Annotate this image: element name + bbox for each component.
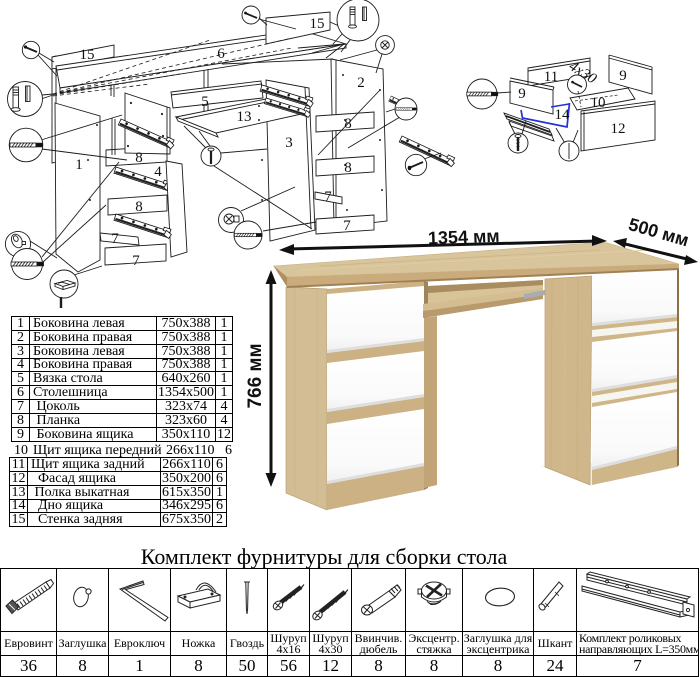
svg-text:12: 12 <box>611 121 626 137</box>
svg-text:11: 11 <box>544 69 558 85</box>
svg-text:15: 15 <box>310 16 325 32</box>
svg-text:8: 8 <box>344 116 352 132</box>
svg-text:500 мм: 500 мм <box>626 214 691 250</box>
svg-text:1354 мм: 1354 мм <box>428 226 500 248</box>
svg-text:6: 6 <box>217 46 225 62</box>
svg-text:7: 7 <box>324 189 332 205</box>
svg-text:9: 9 <box>518 86 526 102</box>
svg-text:13: 13 <box>237 109 252 125</box>
svg-text:7: 7 <box>111 231 119 247</box>
svg-text:14: 14 <box>555 107 571 123</box>
svg-text:8: 8 <box>344 160 352 176</box>
svg-text:15: 15 <box>80 47 95 63</box>
svg-text:1: 1 <box>75 157 83 173</box>
svg-text:3: 3 <box>285 135 293 151</box>
svg-text:10: 10 <box>591 95 606 111</box>
svg-text:8: 8 <box>135 150 143 166</box>
svg-text:9: 9 <box>619 68 627 84</box>
svg-text:4: 4 <box>154 164 162 180</box>
svg-text:766 мм: 766 мм <box>245 343 266 408</box>
svg-text:8: 8 <box>135 199 143 215</box>
svg-text:2: 2 <box>357 75 365 91</box>
svg-text:7: 7 <box>343 218 351 234</box>
svg-text:7: 7 <box>132 253 140 269</box>
svg-text:5: 5 <box>201 94 209 110</box>
